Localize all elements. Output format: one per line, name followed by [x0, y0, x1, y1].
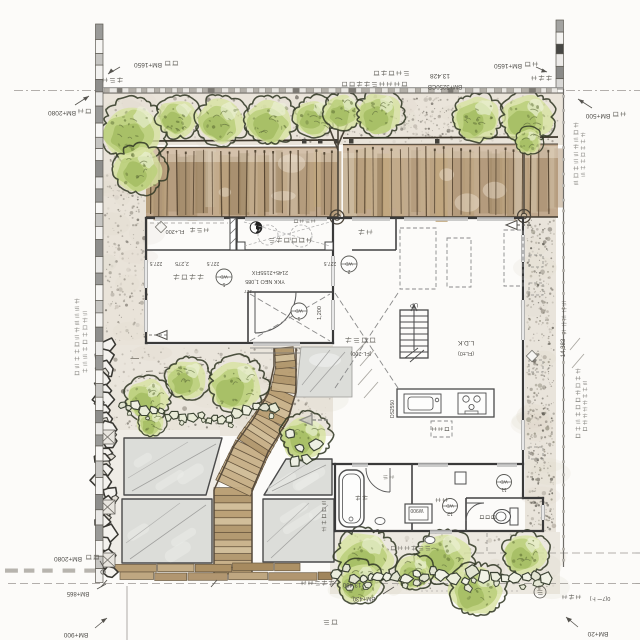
svg-text:FL+200: FL+200 — [166, 228, 185, 234]
svg-text:(FL-200): (FL-200) — [350, 350, 371, 356]
svg-text:(FL±0): (FL±0) — [458, 350, 474, 356]
svg-text:BM+430: BM+430 — [352, 595, 375, 601]
svg-text:WD: WD — [220, 275, 228, 280]
svg-text:13,490: 13,490 — [342, 581, 361, 587]
svg-text:WD: WD — [446, 504, 454, 509]
svg-text:227.5: 227.5 — [150, 260, 163, 266]
svg-text:227: 227 — [244, 289, 252, 294]
svg-text:BM+1650: BM+1650 — [134, 61, 162, 68]
svg-text:BM+1650: BM+1650 — [494, 62, 522, 69]
svg-text:227.5: 227.5 — [207, 260, 220, 266]
svg-text:WD: WD — [500, 480, 508, 485]
svg-text:WD: WD — [345, 262, 353, 267]
svg-text:WD: WD — [295, 309, 303, 314]
svg-text:11: 11 — [501, 486, 506, 492]
svg-text:227.5: 227.5 — [324, 260, 337, 266]
svg-text:BM+900: BM+900 — [63, 631, 88, 638]
svg-text:BM+865: BM+865 — [66, 590, 89, 596]
svg-text:2145+2155FIX: 2145+2155FIX — [252, 269, 289, 275]
svg-text:13.428: 13.428 — [430, 72, 450, 79]
svg-text:W900: W900 — [410, 507, 423, 513]
svg-text:2,275: 2,275 — [175, 260, 189, 266]
svg-text:DS2550: DS2550 — [390, 400, 396, 418]
svg-text:1,200: 1,200 — [317, 306, 323, 320]
svg-text:BM+3250CB: BM+3250CB — [428, 83, 462, 89]
svg-text:UP: UP — [410, 301, 418, 307]
svg-text:BM+2080: BM+2080 — [54, 555, 82, 562]
svg-text:BM+20: BM+20 — [587, 630, 608, 637]
svg-text:0(7ート): 0(7ート) — [589, 595, 610, 601]
svg-text:YKK NEO 1,085: YKK NEO 1,085 — [245, 278, 285, 284]
svg-text:BM+500: BM+500 — [585, 112, 610, 119]
svg-text:L.D.K: L.D.K — [457, 339, 474, 346]
svg-text:5: 5 — [222, 281, 225, 287]
svg-text:2: 2 — [347, 268, 350, 274]
svg-text:1: 1 — [297, 315, 300, 321]
svg-text:12: 12 — [447, 510, 453, 516]
svg-text:BM+2080: BM+2080 — [48, 109, 76, 116]
svg-text:14,383: 14,383 — [561, 338, 567, 357]
